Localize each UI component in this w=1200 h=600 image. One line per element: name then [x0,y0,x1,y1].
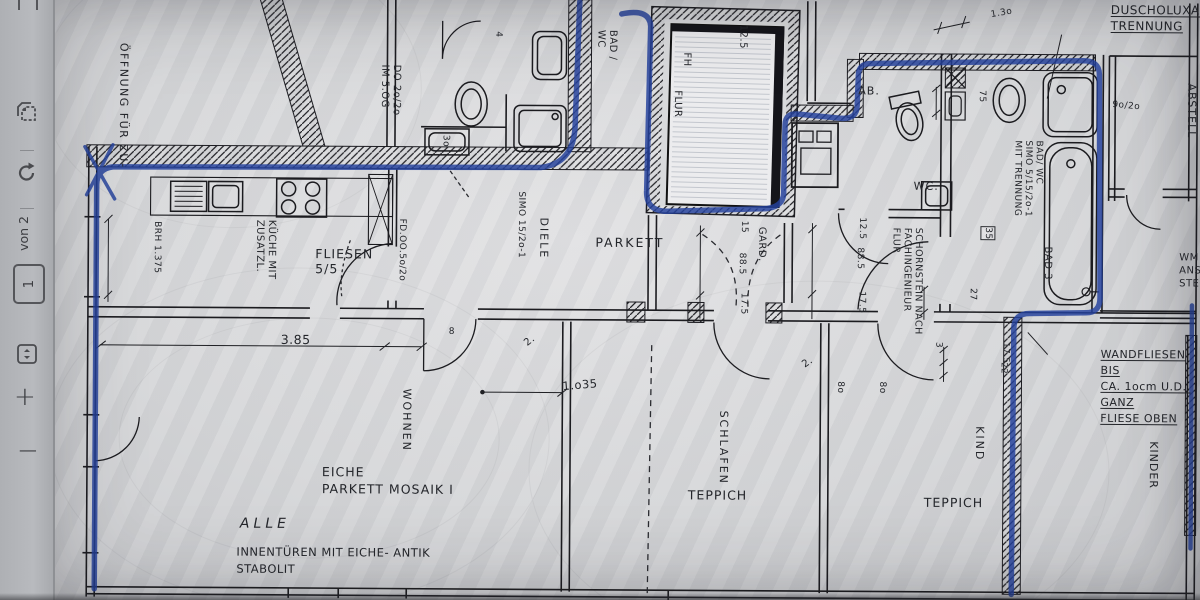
page-count-label: von 2 [16,216,31,251]
note-teppich-kind: TEPPICH [924,496,984,511]
dim-27: 27 [967,288,978,301]
room-label-schlafen: SCHLAFEN [716,411,729,485]
shaft [646,7,800,217]
duct-box [792,123,838,187]
dim-30: 3o [440,135,451,147]
note-do-og: DO 2o/2o IM 5.OG [378,64,402,115]
dim-885-l: 88.5 [736,253,747,275]
dim-15-l: 15 [738,221,749,234]
toolbar-divider [20,208,34,209]
note-wandfliesen: WANDFLIESEN BIS CA. 1ocm U.D., GANZ FLIE… [1100,347,1199,427]
walls [82,0,1198,600]
dim-80-a: 8o [834,381,845,393]
zoom-out-button[interactable]: − [17,436,39,466]
note-alle: ALLE [238,516,291,533]
room-label-ab: AB. [858,85,880,98]
note-eiche: EICHE PARKETT MOSAIK I [322,464,454,499]
dim-175-r: 17.5 [856,291,867,313]
zoom-in-button[interactable]: + [14,382,36,412]
page-thumbnail-icon[interactable] [16,0,40,14]
room-label-kind: KIND [972,426,985,461]
room-label-abstell: ABSTELL [1184,83,1197,138]
pages-icon[interactable] [14,100,40,130]
room-label-gard: GARD. [755,227,767,262]
dim-1035: 1.o35 [562,377,598,393]
note-oeffnung: ÖFFNUNG FÜR ZU- [116,43,130,168]
toolbar-divider [20,150,34,151]
room-label-parkett: PARKETT [595,236,664,251]
note-duscholux: DUSCHOLUXAB- TRENNUNG [1111,3,1200,35]
note-bad-wc-right: BAD/ WC SIMO 5/15/2o-1 MIT TRENNUNG [1012,140,1044,217]
note-fliesen: FLIESEN 5/5 [315,247,373,277]
room-label-fh: FH [680,52,692,66]
page-number-input[interactable]: 1 [13,264,45,304]
note-simo-diele: SIMO 15/2o-1 [515,191,526,258]
room-label-kueche: KÜCHE MIT ZUSATZL. [253,220,277,280]
room-label-diele: DIELE [536,217,549,259]
dim-8: 8 [449,327,455,338]
note-wm-anschluss: WM ANSCHLUSS STECKDOSE [1179,251,1200,290]
room-label-wohnen: WOHNEN [399,389,412,452]
dim-385: 3.85 [281,333,311,348]
dim-125-r: 12.5 [856,217,867,239]
dim-175-kind: 17.5 [1001,342,1011,363]
fit-page-icon[interactable] [15,342,39,370]
note-schornstein: SCHORNSTEIN NACH FACHINGENIEUR FLUR [890,228,924,335]
note-brh: BRH 1.375 [151,221,162,273]
dim-125-shaft: 12.5 [737,25,749,49]
floorplan-page[interactable]: ÖFFNUNG FÜR ZU- DO 2o/2o IM 5.OG BAD / W… [55,0,1200,600]
room-label-wc: WC. [914,181,939,194]
floorplan-photo: ÖFFNUNG FÜR ZU- DO 2o/2o IM 5.OG BAD / W… [55,0,1200,600]
photo-edge-shadow [0,593,1200,600]
note-innentueren: INNENTÜREN MIT EICHE- ANTIK STABOLIT [236,544,430,580]
dim-885-r: 88.5 [854,247,865,269]
room-label-bad-wc-left: BAD / WC [594,30,618,61]
screenshot-root: von 2 1 + − [0,0,1200,600]
room-label-bad3: BAD 3 [1041,247,1053,281]
dim-22-kind: 22 [999,362,1009,374]
note-fd: FD.OO.5o/2o [396,219,407,282]
dim-4: 4 [493,31,504,37]
hatched-walls [84,0,1199,595]
floorplan-drawing [55,0,1200,600]
note-teppich-schlafen: TEPPICH [688,488,748,503]
dim-75: 75 [976,90,987,103]
dim-80-b: 8o [876,382,887,394]
room-label-kinder: KINDER [1146,441,1159,489]
dim-175-l: 17.5 [738,293,749,315]
blue-marker-traces [82,0,1194,595]
room-label-flur-left: FLUR [671,90,683,117]
dim-35: 35 [980,226,995,241]
page-number-value: 1 [22,280,37,288]
rotate-icon[interactable] [14,160,40,190]
pdf-toolbar: von 2 1 + − [0,0,55,600]
dim-3-kind: 3 [933,342,944,348]
